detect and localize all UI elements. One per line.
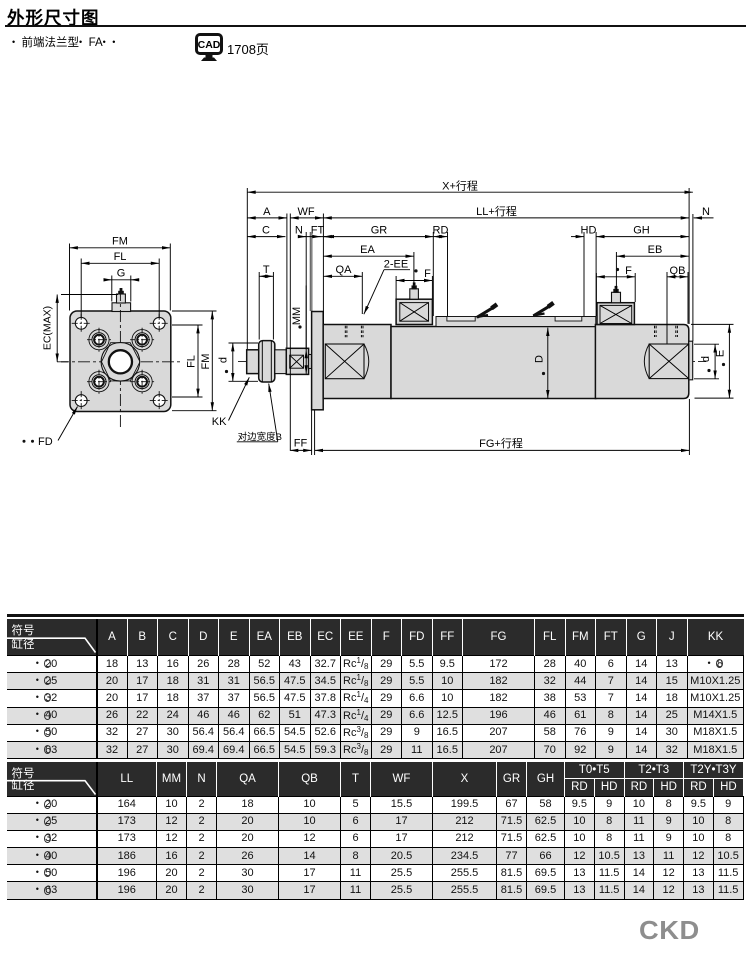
svg-text:F: F: [625, 265, 632, 277]
svg-text:d: d: [700, 356, 712, 362]
svg-text:T: T: [263, 264, 270, 276]
svg-text:2-EE: 2-EE: [384, 259, 408, 271]
svg-text:FM: FM: [200, 354, 212, 370]
svg-text:CAD: CAD: [198, 39, 221, 51]
svg-text:G: G: [117, 268, 126, 280]
svg-text:MM: MM: [291, 307, 303, 325]
svg-text:FT: FT: [311, 225, 325, 237]
svg-text:D: D: [534, 355, 546, 363]
svg-text:A: A: [263, 206, 271, 218]
svg-text:对边宽度B: 对边宽度B: [238, 431, 282, 443]
svg-text:RD: RD: [433, 225, 449, 237]
svg-text:FF: FF: [294, 438, 308, 450]
svg-text:F: F: [424, 268, 431, 280]
svg-text:C: C: [262, 225, 270, 237]
svg-text:N: N: [702, 206, 710, 218]
svg-text:N: N: [295, 225, 303, 237]
svg-text:KK: KK: [212, 416, 227, 428]
svg-text:EC(MAX): EC(MAX): [42, 306, 54, 350]
svg-text:QB: QB: [670, 265, 686, 277]
svg-text:d: d: [218, 357, 230, 363]
svg-text:WF: WF: [297, 206, 314, 218]
svg-text:LL+行程: LL+行程: [476, 205, 517, 218]
svg-text:GH: GH: [633, 225, 650, 237]
svg-text:HD: HD: [581, 225, 597, 237]
svg-text:FL: FL: [114, 251, 127, 263]
svg-text:X+行程: X+行程: [442, 179, 478, 192]
svg-text:E: E: [715, 350, 727, 357]
svg-text:FL: FL: [186, 355, 198, 368]
svg-text:FM: FM: [112, 236, 128, 248]
svg-text:EB: EB: [648, 244, 663, 256]
svg-text:GR: GR: [371, 225, 388, 237]
svg-text:FD: FD: [38, 436, 53, 448]
svg-text:FG+行程: FG+行程: [479, 437, 523, 450]
svg-text:EA: EA: [360, 244, 375, 256]
svg-text:QA: QA: [336, 264, 353, 276]
